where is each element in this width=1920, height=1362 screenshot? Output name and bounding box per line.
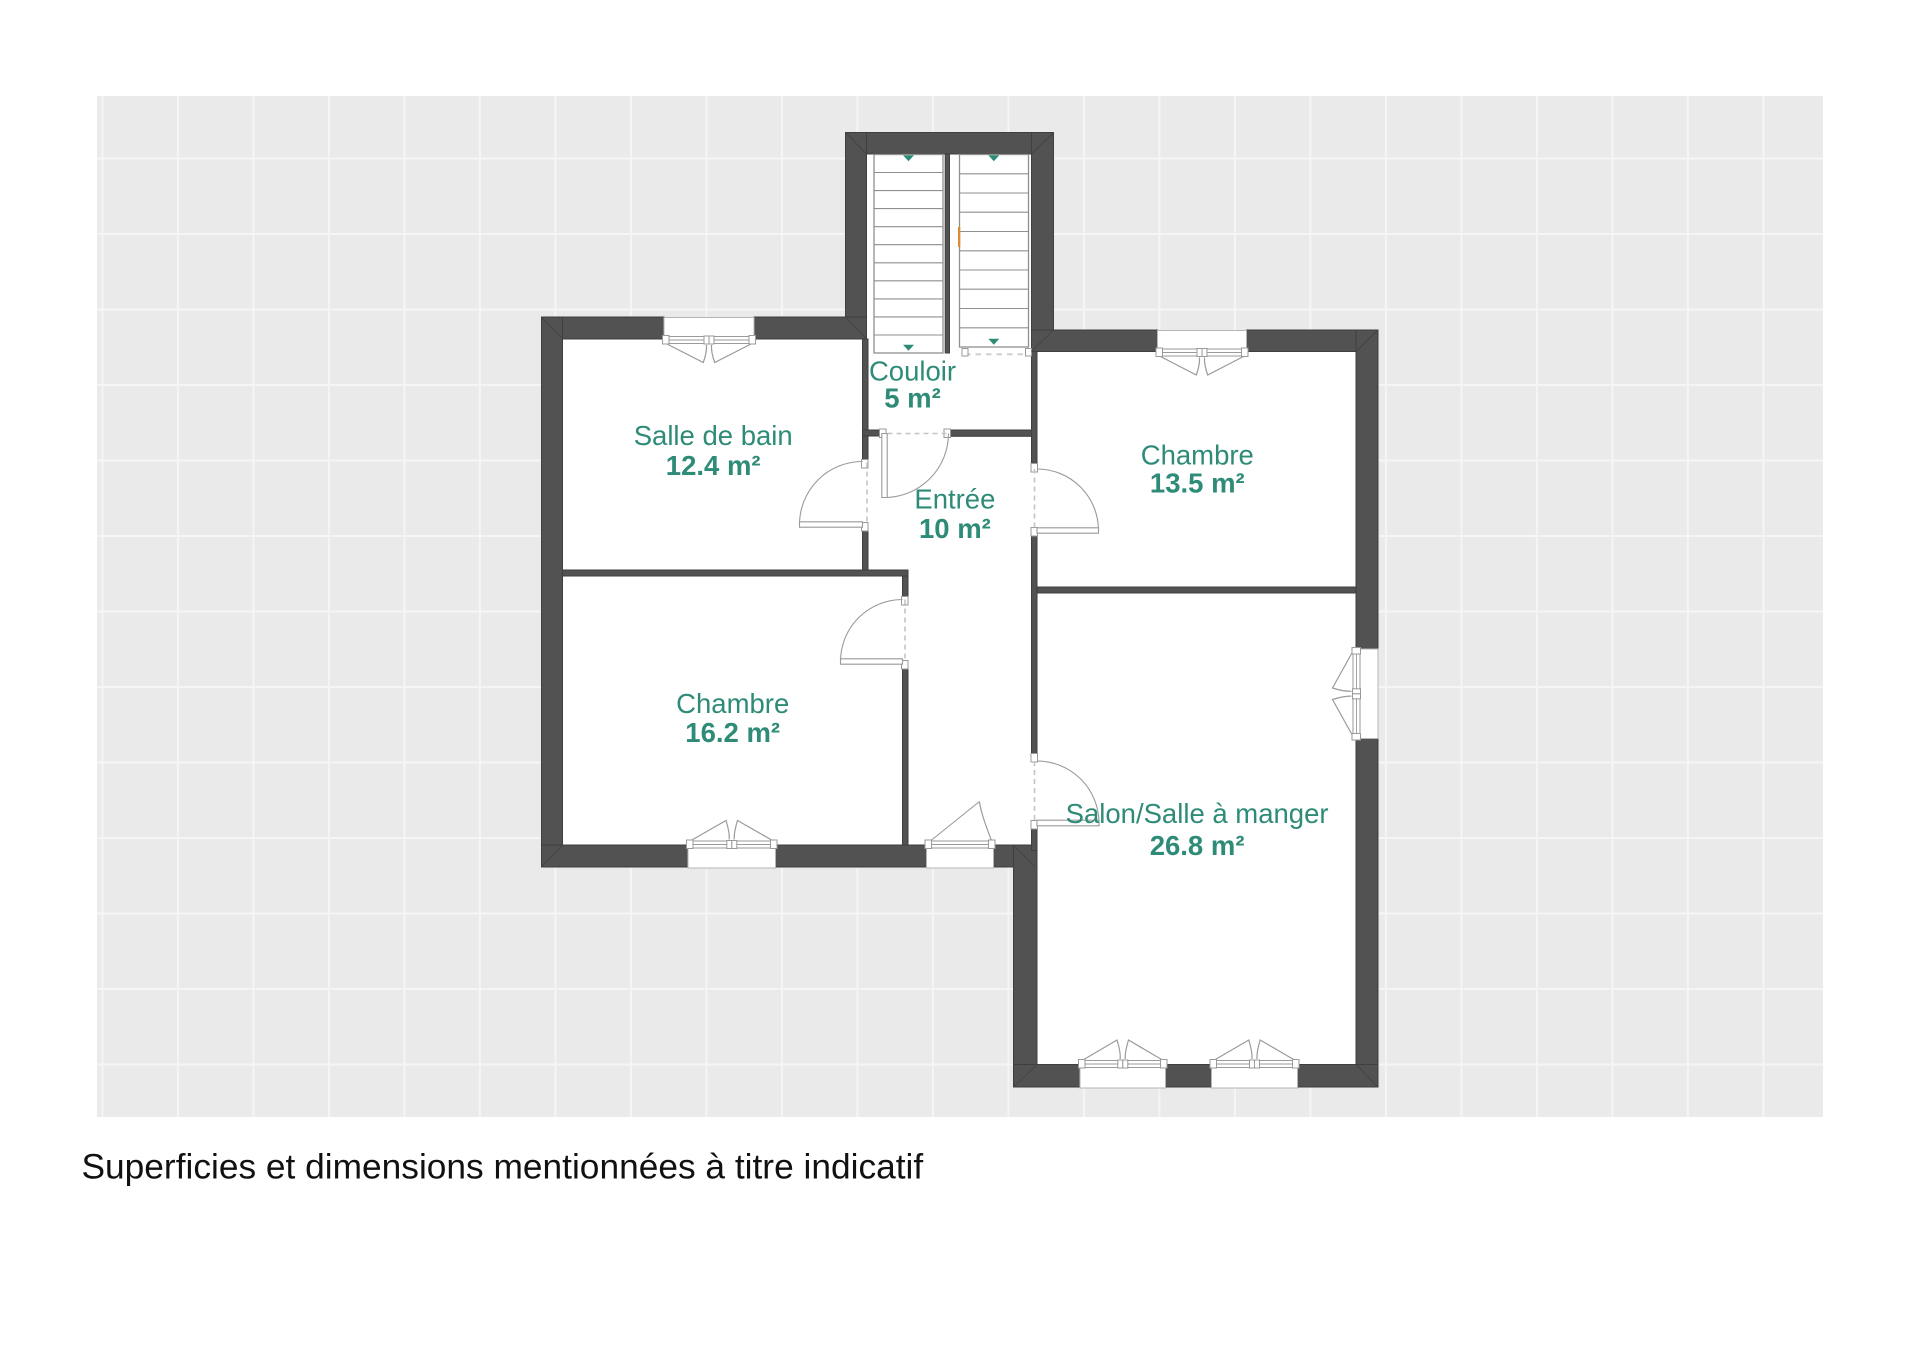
svg-text:10 m²: 10 m²	[919, 513, 991, 544]
svg-text:Superficies et dimensions ment: Superficies et dimensions mentionnées à …	[82, 1148, 924, 1187]
svg-text:16.2 m²: 16.2 m²	[685, 717, 780, 748]
svg-text:Chambre: Chambre	[1141, 440, 1254, 471]
svg-text:Salle de bain: Salle de bain	[634, 420, 793, 451]
svg-text:12.4 m²: 12.4 m²	[666, 450, 761, 481]
svg-text:13.5 m²: 13.5 m²	[1150, 468, 1245, 499]
svg-text:Entrée: Entrée	[914, 484, 995, 515]
svg-text:Salon/Salle à manger: Salon/Salle à manger	[1066, 798, 1329, 829]
svg-text:5 m²: 5 m²	[884, 382, 941, 413]
svg-text:26.8 m²: 26.8 m²	[1150, 830, 1245, 861]
svg-text:Chambre: Chambre	[676, 688, 789, 719]
